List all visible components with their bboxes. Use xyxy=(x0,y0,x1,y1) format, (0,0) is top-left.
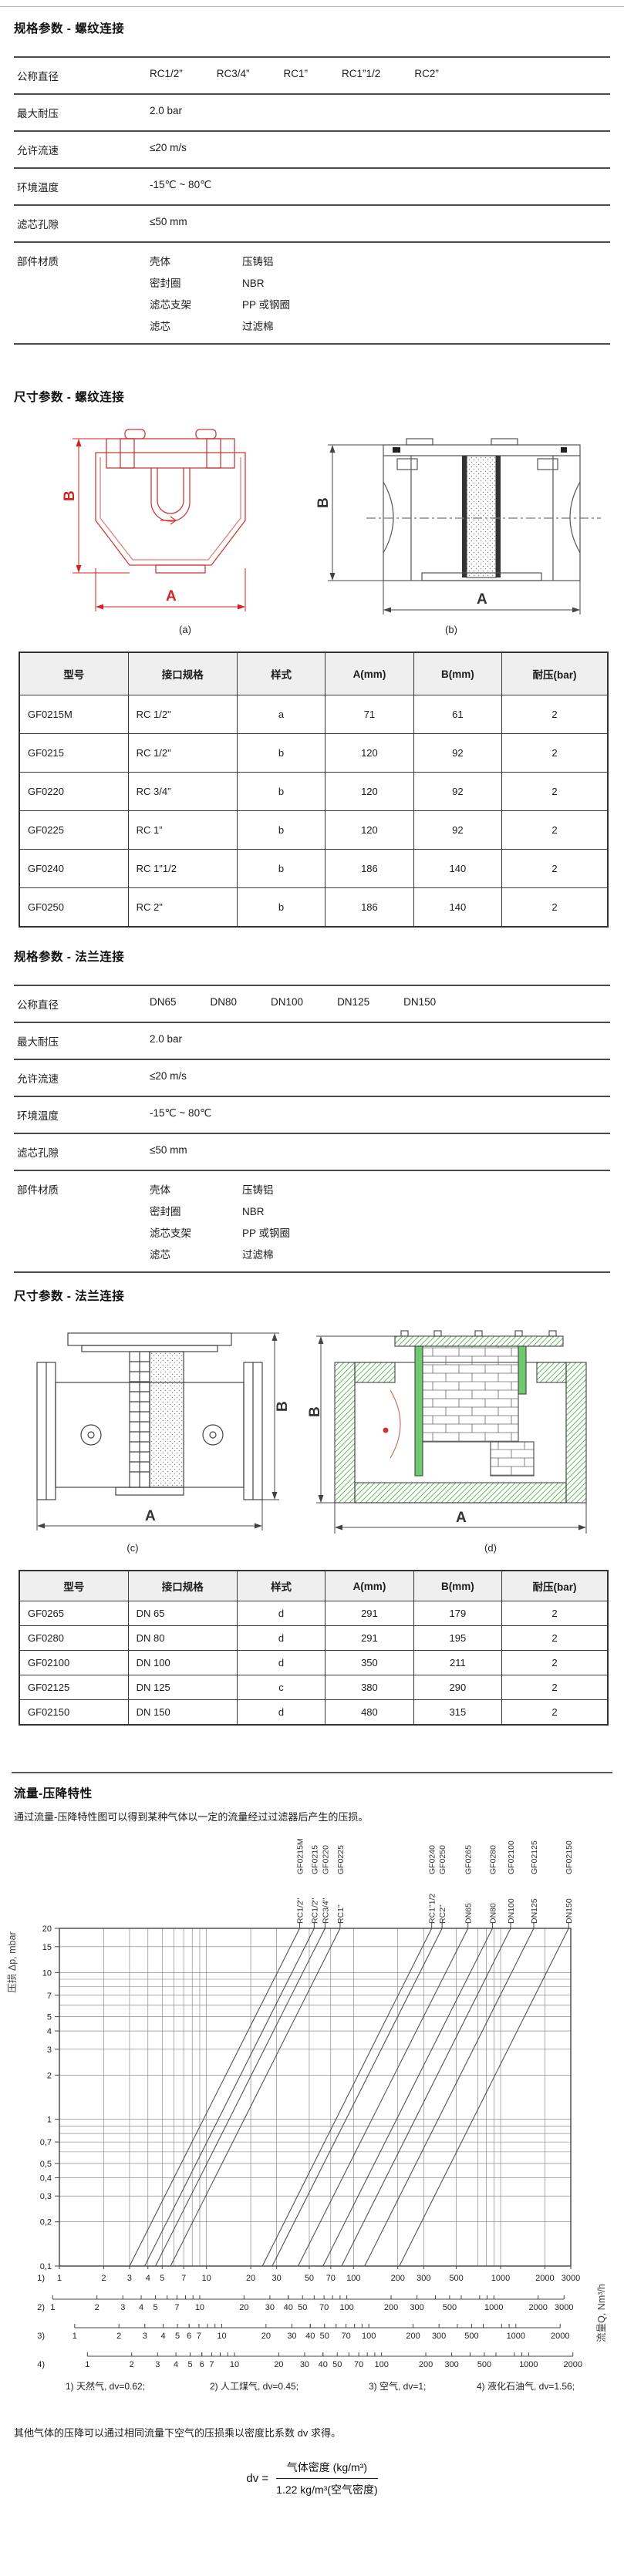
dimension-table-thread: 型号接口规格样式A(mm)B(mm)耐压(bar)GF0215MRC 1/2"a… xyxy=(19,652,609,928)
table-row: GF0215RC 1/2"b120922 xyxy=(19,734,608,773)
y-tick-label: 20 xyxy=(42,1924,52,1934)
gas-scale-tick-label: 200 xyxy=(419,2360,433,2369)
dim-label-A: A xyxy=(145,1508,156,1524)
spec-label: 环境温度 xyxy=(17,179,150,194)
gas-scale-tick-label: 20 xyxy=(246,2274,255,2283)
material-part: 密封圈 xyxy=(150,274,242,290)
spec-values: DN65DN80DN100DN125DN150 xyxy=(150,996,436,1008)
gas-scale-tick-label: 30 xyxy=(272,2274,282,2283)
table-cell: 120 xyxy=(325,811,413,850)
gas-scale-tick-label: 500 xyxy=(464,2332,478,2341)
gas-scale-tick-label: 4 xyxy=(174,2360,178,2369)
figure-label-d: (d) xyxy=(484,1542,497,1554)
table-cell: 380 xyxy=(325,1675,413,1700)
formula-lhs: dv = xyxy=(246,2472,268,2485)
spec-row: 允许流速≤20 m/s xyxy=(14,130,610,167)
filter-body-outline-d xyxy=(335,1331,586,1503)
gas-scale-tick-label: 1 xyxy=(50,2303,55,2312)
spec-label: 最大耐压 xyxy=(17,105,150,120)
seal-strip xyxy=(415,1346,423,1476)
table-cell: 2 xyxy=(502,1675,608,1700)
spec-label: 部件材质 xyxy=(17,253,150,268)
table-cell: DN 125 xyxy=(128,1675,237,1700)
table-cell: RC 2" xyxy=(128,888,237,928)
table-cell: 92 xyxy=(413,773,501,811)
flow-pressure-drop-chart: 2015107543210,70,50,40,30,20,1GF0215MRC1… xyxy=(0,1830,624,2409)
filter-element xyxy=(150,1352,184,1487)
spec-row: 部件材质壳体压铸铝密封圈NBR滤芯支架PP 或钢圈滤芯过滤棉 xyxy=(14,1170,610,1271)
gas-scale-tick-label: 50 xyxy=(298,2303,307,2312)
gas-scale-tick-label: 2000 xyxy=(563,2360,582,2369)
material-part: 滤芯支架 xyxy=(150,1224,242,1240)
material-name: PP 或钢圈 xyxy=(242,1227,290,1239)
dv-formula: dv = 气体密度 (kg/m³) 1.22 kg/m³(空气密度) xyxy=(0,2460,624,2497)
table-cell: RC 1/2" xyxy=(128,695,237,734)
gas-scale-tick-label: 300 xyxy=(444,2360,458,2369)
dim-label-A: A xyxy=(477,591,487,608)
spec-value: ≤50 mm xyxy=(150,216,187,227)
table-row: GF0265DN 65d2911792 xyxy=(19,1601,608,1626)
series-model-label: GF0220 xyxy=(321,1845,330,1874)
spec-value: DN150 xyxy=(403,996,436,1008)
table-cell: 120 xyxy=(325,734,413,773)
table-row: GF0225RC 1”b120922 xyxy=(19,811,608,850)
table-cell: 480 xyxy=(325,1700,413,1726)
table-cell: 350 xyxy=(325,1651,413,1675)
table-cell: 211 xyxy=(413,1651,501,1675)
y-tick-label: 15 xyxy=(42,1943,52,1952)
formula-denominator: 1.22 kg/m³(空气密度) xyxy=(276,2479,377,2497)
table-cell: 2 xyxy=(502,1626,608,1651)
material-name: NBR xyxy=(242,278,265,289)
x-axis-label: 流量Q, Nm³/h xyxy=(596,2284,607,2342)
series-model-label: GF0215 xyxy=(310,1845,319,1874)
material-pair: 密封圈NBR xyxy=(150,274,290,290)
gas-scale-tick-label: 100 xyxy=(339,2303,353,2312)
left-port xyxy=(383,482,393,553)
material-name: NBR xyxy=(242,1206,265,1217)
y-tick-label: 0,4 xyxy=(40,2174,52,2183)
table-cell: 291 xyxy=(325,1626,413,1651)
gas-scale-tick-label: 1 xyxy=(73,2332,77,2341)
y-tick-label: 5 xyxy=(47,2013,52,2022)
series-line-GF0250 xyxy=(272,1928,442,2266)
series-size-label: RC3/4" xyxy=(321,1897,330,1924)
spec-value: RC1” xyxy=(284,68,309,79)
gas-scale-tick-label: 3 xyxy=(120,2303,125,2312)
gas-scale-id: 3) xyxy=(37,2332,45,2341)
series-size-label: RC1"1/2 xyxy=(428,1894,437,1924)
spec-value: ≤20 m/s xyxy=(150,142,187,153)
gas-scale-tick-label: 30 xyxy=(287,2332,296,2341)
dimension-b-a xyxy=(73,439,245,611)
gas-scale-tick-label: 4 xyxy=(146,2274,150,2283)
spec-table-flange: 公称直径DN65DN80DN100DN125DN150最大耐压2.0 bar允许… xyxy=(14,985,610,1273)
material-pair: 滤芯支架PP 或钢圈 xyxy=(150,296,290,311)
material-name: 过滤棉 xyxy=(242,321,274,332)
gas-scale-tick-label: 2 xyxy=(130,2360,134,2369)
dimension-arrowheads xyxy=(76,439,246,610)
table-cell: d xyxy=(237,1700,325,1726)
spec-row: 滤芯孔隙≤50 mm xyxy=(14,204,610,241)
spec-row: 部件材质壳体压铸铝密封圈NBR滤芯支架PP 或钢圈滤芯过滤棉 xyxy=(14,241,610,343)
spec-values: ≤50 mm xyxy=(150,1144,187,1156)
series-model-label: GF0250 xyxy=(438,1845,447,1874)
drawing-b-cross-section: B A xyxy=(306,422,615,624)
spec-values: ≤50 mm xyxy=(150,216,187,227)
table-cell: 2 xyxy=(502,888,608,928)
y-tick-label: 7 xyxy=(47,1992,52,2001)
gas-scale-tick-label: 7 xyxy=(209,2360,214,2369)
table-cell: DN 150 xyxy=(128,1700,237,1726)
gas-scale-tick-label: 50 xyxy=(332,2360,342,2369)
drawing-c-flange-view: B A xyxy=(23,1322,293,1542)
series-model-label: GF0215M xyxy=(295,1838,305,1874)
material-pair: 壳体压铸铝 xyxy=(150,253,290,268)
table-row: GF02150DN 150d4803152 xyxy=(19,1700,608,1726)
material-pair: 壳体压铸铝 xyxy=(150,1181,290,1197)
section-title-spec-thread: 规格参数 - 螺纹连接 xyxy=(0,19,624,36)
gas-scale-tick-label: 30 xyxy=(300,2360,309,2369)
spec-values: RC1/2”RC3/4”RC1”RC1”1/2RC2” xyxy=(150,68,439,79)
figure-label-b: (b) xyxy=(445,624,457,635)
gas-scale-tick-label: 200 xyxy=(391,2274,405,2283)
gas-scale-tick-label: 30 xyxy=(265,2303,275,2312)
table-row: GF02100DN 100d3502112 xyxy=(19,1651,608,1675)
gas-scale-tick-label: 300 xyxy=(410,2303,423,2312)
gas-scale-tick-label: 100 xyxy=(362,2332,376,2341)
filter-element xyxy=(467,456,496,577)
series-size-label: DN80 xyxy=(488,1903,498,1924)
bolt-icon xyxy=(125,429,145,439)
spec-value: RC1/2” xyxy=(150,68,183,79)
table-cell: RC 1/2" xyxy=(128,734,237,773)
table-cell: d xyxy=(237,1651,325,1675)
table-row: GF0280DN 80d2911952 xyxy=(19,1626,608,1651)
gas-scale-tick-label: 200 xyxy=(406,2332,420,2341)
table-cell: b xyxy=(237,811,325,850)
material-pair: 滤芯过滤棉 xyxy=(150,318,290,333)
gas-scale-tick-label: 3000 xyxy=(555,2303,573,2312)
table-cell: 2 xyxy=(502,1651,608,1675)
table-cell: 2 xyxy=(502,734,608,773)
material-pair: 滤芯过滤棉 xyxy=(150,1246,290,1261)
material-part: 滤芯 xyxy=(150,1246,242,1261)
filter-element-brick xyxy=(423,1346,518,1442)
gas-scale-tick-label: 1000 xyxy=(484,2303,503,2312)
material-part: 壳体 xyxy=(150,1181,242,1197)
series-line-GF0240 xyxy=(262,1928,432,2266)
table-cell: 2 xyxy=(502,1601,608,1626)
table-cell: 140 xyxy=(413,888,501,928)
gas-scale-tick-label: 1000 xyxy=(519,2360,538,2369)
spec-values: 壳体压铸铝密封圈NBR滤芯支架PP 或钢圈滤芯过滤棉 xyxy=(150,1181,290,1261)
spec-label: 允许流速 xyxy=(17,142,150,157)
section-divider xyxy=(12,1772,612,1773)
spec-values: ≤20 m/s xyxy=(150,142,187,153)
y-axis-label: 压损 Δp, mbar xyxy=(7,1931,18,1992)
table-cell: 2 xyxy=(502,1700,608,1726)
spec-value: 2.0 bar xyxy=(150,1033,182,1045)
seal-mark xyxy=(393,447,400,453)
spec-row: 滤芯孔隙≤50 mm xyxy=(14,1133,610,1170)
port-center xyxy=(81,1425,101,1445)
table-cell: GF0240 xyxy=(19,850,128,888)
gas-scale-tick-label: 6 xyxy=(187,2332,191,2341)
spec-value: -15℃ ~ 80℃ xyxy=(150,179,211,191)
gas-scale-tick-label: 500 xyxy=(477,2360,491,2369)
column-header: 耐压(bar) xyxy=(502,1571,608,1601)
table-cell: 291 xyxy=(325,1601,413,1626)
gas-scale-tick-label: 7 xyxy=(197,2332,201,2341)
table-cell: c xyxy=(237,1675,325,1700)
table-cell: 61 xyxy=(413,695,501,734)
table-cell: 186 xyxy=(325,888,413,928)
dim-label-A: A xyxy=(166,588,177,604)
datasheet-page: 规格参数 - 螺纹连接 公称直径RC1/2”RC3/4”RC1”RC1”1/2R… xyxy=(0,0,624,2576)
series-line-GF0265 xyxy=(299,1928,468,2266)
table-cell: 2 xyxy=(502,850,608,888)
spec-row: 环境温度-15℃ ~ 80℃ xyxy=(14,167,610,204)
gas-footnote: 3) 空气, dv=1; xyxy=(369,2380,426,2392)
flow-description: 通过流量-压降特性图可以得到某种气体以一定的流量经过过滤器后产生的压损。 xyxy=(14,1809,624,1823)
column-header: 接口规格 xyxy=(128,1571,237,1601)
table-row: GF0250RC 2"b1861402 xyxy=(19,888,608,928)
series-size-label: RC1/2" xyxy=(310,1897,319,1924)
dim-label-B: B xyxy=(62,490,78,501)
figure-labels-thread: (a) (b) xyxy=(0,624,624,641)
gas-scale-tick-label: 5 xyxy=(153,2303,157,2312)
gas-scale-tick-label: 7 xyxy=(174,2303,179,2312)
table-cell: GF0280 xyxy=(19,1626,128,1651)
filter-body-outline-b xyxy=(366,439,601,581)
series-size-label: DN100 xyxy=(507,1898,516,1924)
column-header: A(mm) xyxy=(325,652,413,695)
gas-scale-tick-label: 50 xyxy=(320,2332,329,2341)
spec-label: 部件材质 xyxy=(17,1181,150,1197)
spec-value: DN80 xyxy=(211,996,238,1008)
gas-scale-tick-label: 50 xyxy=(305,2274,314,2283)
y-tick-label: 0,3 xyxy=(40,2192,52,2201)
y-tick-label: 0,1 xyxy=(40,2262,52,2271)
gas-scale-tick-label: 70 xyxy=(354,2360,363,2369)
spec-value: RC2” xyxy=(414,68,439,79)
spec-table-thread: 公称直径RC1/2”RC3/4”RC1”RC1”1/2RC2”最大耐压2.0 b… xyxy=(14,56,610,345)
header-row: 型号接口规格样式A(mm)B(mm)耐压(bar) xyxy=(19,1571,608,1601)
material-name: 压铸铝 xyxy=(242,1184,274,1196)
gas-scale-tick-label: 300 xyxy=(432,2332,446,2341)
top-divider xyxy=(0,6,624,7)
table-cell: GF0225 xyxy=(19,811,128,850)
table-cell: b xyxy=(237,888,325,928)
right-port xyxy=(570,482,580,553)
gas-scale-tick-label: 3 xyxy=(127,2274,132,2283)
series-line-GF0215M xyxy=(130,1928,299,2266)
drawing-a-front-view: B A xyxy=(60,422,299,624)
gas-footnote: 2) 人工煤气, dv=0.45; xyxy=(210,2380,299,2392)
spec-value: -15℃ ~ 80℃ xyxy=(150,1107,211,1120)
dimension-b-b xyxy=(328,445,580,615)
gas-scale-tick-label: 1000 xyxy=(491,2274,510,2283)
flow-note: 其他气体的压降可以通过相同流量下空气的压损乘以密度比系数 dv 求得。 xyxy=(14,2425,624,2440)
gas-scale-id: 1) xyxy=(37,2274,45,2283)
material-pair: 密封圈NBR xyxy=(150,1203,290,1218)
gas-scale-tick-label: 2 xyxy=(95,2303,100,2312)
top-cover xyxy=(395,1336,563,1346)
table-cell: b xyxy=(237,850,325,888)
port-center xyxy=(203,1425,223,1445)
spec-row: 公称直径DN65DN80DN100DN125DN150 xyxy=(14,985,610,1022)
y-tick-label: 4 xyxy=(47,2027,52,2036)
spec-row: 最大耐压2.0 bar xyxy=(14,93,610,130)
table-row: GF0240RC 1"1/2b1861402 xyxy=(19,850,608,888)
table-cell: 179 xyxy=(413,1601,501,1626)
column-header: 耐压(bar) xyxy=(502,652,608,695)
figure-label-c: (c) xyxy=(126,1542,138,1554)
gas-scale-tick-label: 500 xyxy=(449,2274,463,2283)
table-cell: GF0215M xyxy=(19,695,128,734)
gas-scale-tick-label: 6 xyxy=(200,2360,204,2369)
table-row: GF0220RC 3/4”b120922 xyxy=(19,773,608,811)
table-cell: 71 xyxy=(325,695,413,734)
gas-scale-tick-label: 10 xyxy=(195,2303,204,2312)
spec-row: 公称直径RC1/2”RC3/4”RC1”RC1”1/2RC2” xyxy=(14,56,610,93)
gas-scale-tick-label: 1 xyxy=(57,2274,62,2283)
y-tick-label: 10 xyxy=(42,1968,52,1978)
section-title-dim-thread: 尺寸参数 - 螺纹连接 xyxy=(0,388,624,405)
spec-row: 允许流速≤20 m/s xyxy=(14,1059,610,1096)
gas-scale-tick-label: 10 xyxy=(217,2332,226,2341)
gas-scale-tick-label: 500 xyxy=(443,2303,457,2312)
spec-value: RC3/4” xyxy=(217,68,250,79)
dimension-table-flange: 型号接口规格样式A(mm)B(mm)耐压(bar)GF0265DN 65d291… xyxy=(19,1570,609,1726)
seal-strip xyxy=(518,1346,526,1394)
gas-scale-tick-label: 100 xyxy=(374,2360,388,2369)
dim-label-B: B xyxy=(315,497,332,508)
column-header: 接口规格 xyxy=(128,652,237,695)
dim-label-B: B xyxy=(275,1401,291,1412)
section-title-spec-flange: 规格参数 - 法兰连接 xyxy=(0,948,624,965)
filter-body-outline-c xyxy=(37,1333,262,1500)
section-title-dim-flange: 尺寸参数 - 法兰连接 xyxy=(0,1287,624,1304)
figure-labels-flange: (c) (d) xyxy=(0,1542,624,1559)
spec-value: DN65 xyxy=(150,996,177,1008)
spec-value: RC1”1/2 xyxy=(342,68,380,79)
table-cell: DN 65 xyxy=(128,1601,237,1626)
table-cell: DN 80 xyxy=(128,1626,237,1651)
drawings-flange: B A xyxy=(0,1322,624,1542)
table-cell: GF0220 xyxy=(19,773,128,811)
material-part: 滤芯 xyxy=(150,318,242,333)
section-title-flow: 流量-压降特性 xyxy=(0,1784,624,1801)
dim-label-B: B xyxy=(309,1406,323,1417)
spec-values: -15℃ ~ 80℃ xyxy=(150,1107,211,1120)
table-cell: RC 1"1/2 xyxy=(128,850,237,888)
spec-row: 最大耐压2.0 bar xyxy=(14,1022,610,1059)
material-part: 壳体 xyxy=(150,253,242,268)
gas-scale-tick-label: 200 xyxy=(384,2303,398,2312)
gas-scale-tick-label: 20 xyxy=(261,2332,271,2341)
dim-label-A: A xyxy=(456,1510,467,1526)
series-model-label: GF02125 xyxy=(530,1840,539,1874)
flow-arrow-icon xyxy=(160,517,176,524)
spec-value: DN100 xyxy=(271,996,303,1008)
series-size-label: RC2" xyxy=(438,1904,447,1924)
y-tick-label: 0,5 xyxy=(40,2160,52,2169)
spec-label: 滤芯孔隙 xyxy=(17,216,150,231)
spec-label: 环境温度 xyxy=(17,1107,150,1123)
spec-values: -15℃ ~ 80℃ xyxy=(150,179,211,191)
table-cell: 120 xyxy=(325,773,413,811)
column-header: A(mm) xyxy=(325,1571,413,1601)
gas-scale-tick-label: 40 xyxy=(305,2332,315,2341)
table-cell: 315 xyxy=(413,1700,501,1726)
material-name: 压铸铝 xyxy=(242,256,274,268)
gas-scale-tick-label: 300 xyxy=(417,2274,430,2283)
series-line-GF0280 xyxy=(323,1928,493,2266)
table-cell: 195 xyxy=(413,1626,501,1651)
gas-scale-tick-label: 2000 xyxy=(551,2332,569,2341)
gas-scale-id: 4) xyxy=(37,2360,45,2369)
table-cell: GF0265 xyxy=(19,1601,128,1626)
spec-label: 公称直径 xyxy=(17,996,150,1012)
gas-footnote: 1) 天然气, dv=0.62; xyxy=(66,2380,145,2392)
table-cell: 92 xyxy=(413,811,501,850)
y-tick-label: 0,2 xyxy=(40,2218,52,2227)
table-cell: GF02150 xyxy=(19,1700,128,1726)
column-header: B(mm) xyxy=(413,652,501,695)
gas-scale-tick-label: 2 xyxy=(101,2274,106,2283)
series-model-label: GF0265 xyxy=(464,1845,474,1874)
gas-scale-tick-label: 2000 xyxy=(535,2274,554,2283)
table-cell: 186 xyxy=(325,850,413,888)
table-cell: 2 xyxy=(502,773,608,811)
table-cell: b xyxy=(237,773,325,811)
table-cell: d xyxy=(237,1601,325,1626)
table-cell: GF02100 xyxy=(19,1651,128,1675)
formula-numerator: 气体密度 (kg/m³) xyxy=(276,2460,377,2479)
gas-scale-tick-label: 70 xyxy=(326,2274,336,2283)
series-model-label: GF0240 xyxy=(428,1845,437,1874)
series-size-label: RC1/2" xyxy=(295,1897,305,1924)
dimension-arrowheads xyxy=(330,445,581,613)
table-cell: b xyxy=(237,734,325,773)
table-cell: 140 xyxy=(413,850,501,888)
table-cell: 92 xyxy=(413,734,501,773)
gas-scale-tick-label: 100 xyxy=(346,2274,360,2283)
gas-scale-tick-label: 40 xyxy=(284,2303,293,2312)
series-size-label: RC1" xyxy=(336,1904,346,1924)
gas-scale-tick-label: 3 xyxy=(155,2360,160,2369)
spec-values: 壳体压铸铝密封圈NBR滤芯支架PP 或钢圈滤芯过滤棉 xyxy=(150,253,290,333)
spec-values: 2.0 bar xyxy=(150,105,182,116)
table-cell: 290 xyxy=(413,1675,501,1700)
series-line-GF0215 xyxy=(145,1928,315,2266)
gas-scale-tick-label: 3 xyxy=(143,2332,147,2341)
gas-scale-tick-label: 1000 xyxy=(507,2332,525,2341)
gas-scale-tick-label: 20 xyxy=(239,2303,248,2312)
port-center xyxy=(383,1428,389,1433)
filter-body-outline-a xyxy=(96,429,245,573)
series-model-label: GF0280 xyxy=(488,1845,498,1874)
y-tick-label: 3 xyxy=(47,2046,52,2055)
spec-values: 2.0 bar xyxy=(150,1033,182,1045)
gas-scale-tick-label: 4 xyxy=(161,2332,166,2341)
table-cell: RC 3/4” xyxy=(128,773,237,811)
table-cell: GF0250 xyxy=(19,888,128,928)
gas-scale-tick-label: 10 xyxy=(202,2274,211,2283)
gas-scale-tick-label: 20 xyxy=(274,2360,283,2369)
